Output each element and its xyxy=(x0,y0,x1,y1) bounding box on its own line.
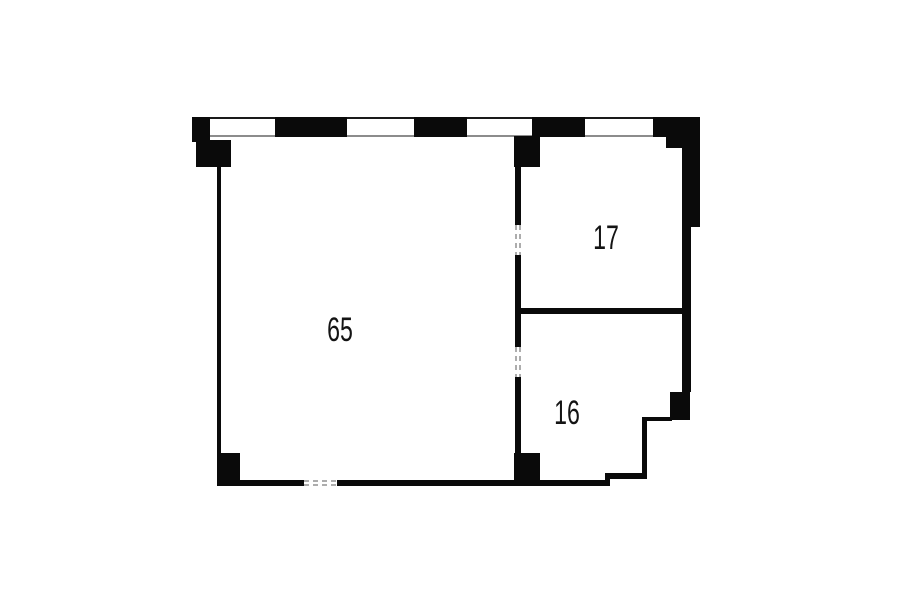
column-right xyxy=(670,392,690,420)
door-opening-bottom xyxy=(304,480,337,486)
door-dash-line xyxy=(515,347,517,377)
door-opening-room-17 xyxy=(515,225,521,255)
column-partition-top xyxy=(514,136,540,167)
wall-bottom-right-segment xyxy=(337,480,610,486)
partition-wall-middle xyxy=(515,255,521,347)
room-16-label: 16 xyxy=(554,396,580,430)
room-17-label: 17 xyxy=(593,221,619,255)
room-65-label: 65 xyxy=(327,313,353,347)
wall-right-upper xyxy=(682,148,700,227)
partition-wall-upper xyxy=(515,167,521,225)
wall-step-vertical-2 xyxy=(605,473,610,486)
wall-bottom-left-segment xyxy=(240,480,304,486)
column-bottom-left xyxy=(217,453,240,486)
door-dash-line xyxy=(515,225,517,255)
door-opening-room-16 xyxy=(515,347,521,377)
window-pier xyxy=(414,117,467,137)
window-pier xyxy=(532,117,585,137)
column-partition-bottom xyxy=(514,453,540,486)
wall-step-horizontal-2 xyxy=(605,473,647,479)
corner-step-top-right xyxy=(666,137,700,148)
window-pier xyxy=(275,117,347,137)
wall-divider-17-16 xyxy=(521,308,682,314)
window-pier-top-left xyxy=(192,117,210,142)
wall-right-middle xyxy=(682,227,691,392)
door-dash-line xyxy=(304,484,337,486)
floor-plan: 65 17 16 xyxy=(0,0,900,604)
wall-step-vertical-1 xyxy=(642,417,647,479)
column-top-left xyxy=(196,140,231,167)
corner-pier-top-right xyxy=(653,117,700,137)
door-dash-line xyxy=(304,480,337,482)
wall-left xyxy=(217,166,221,455)
door-dash-line xyxy=(519,225,521,255)
door-dash-line xyxy=(519,347,521,377)
